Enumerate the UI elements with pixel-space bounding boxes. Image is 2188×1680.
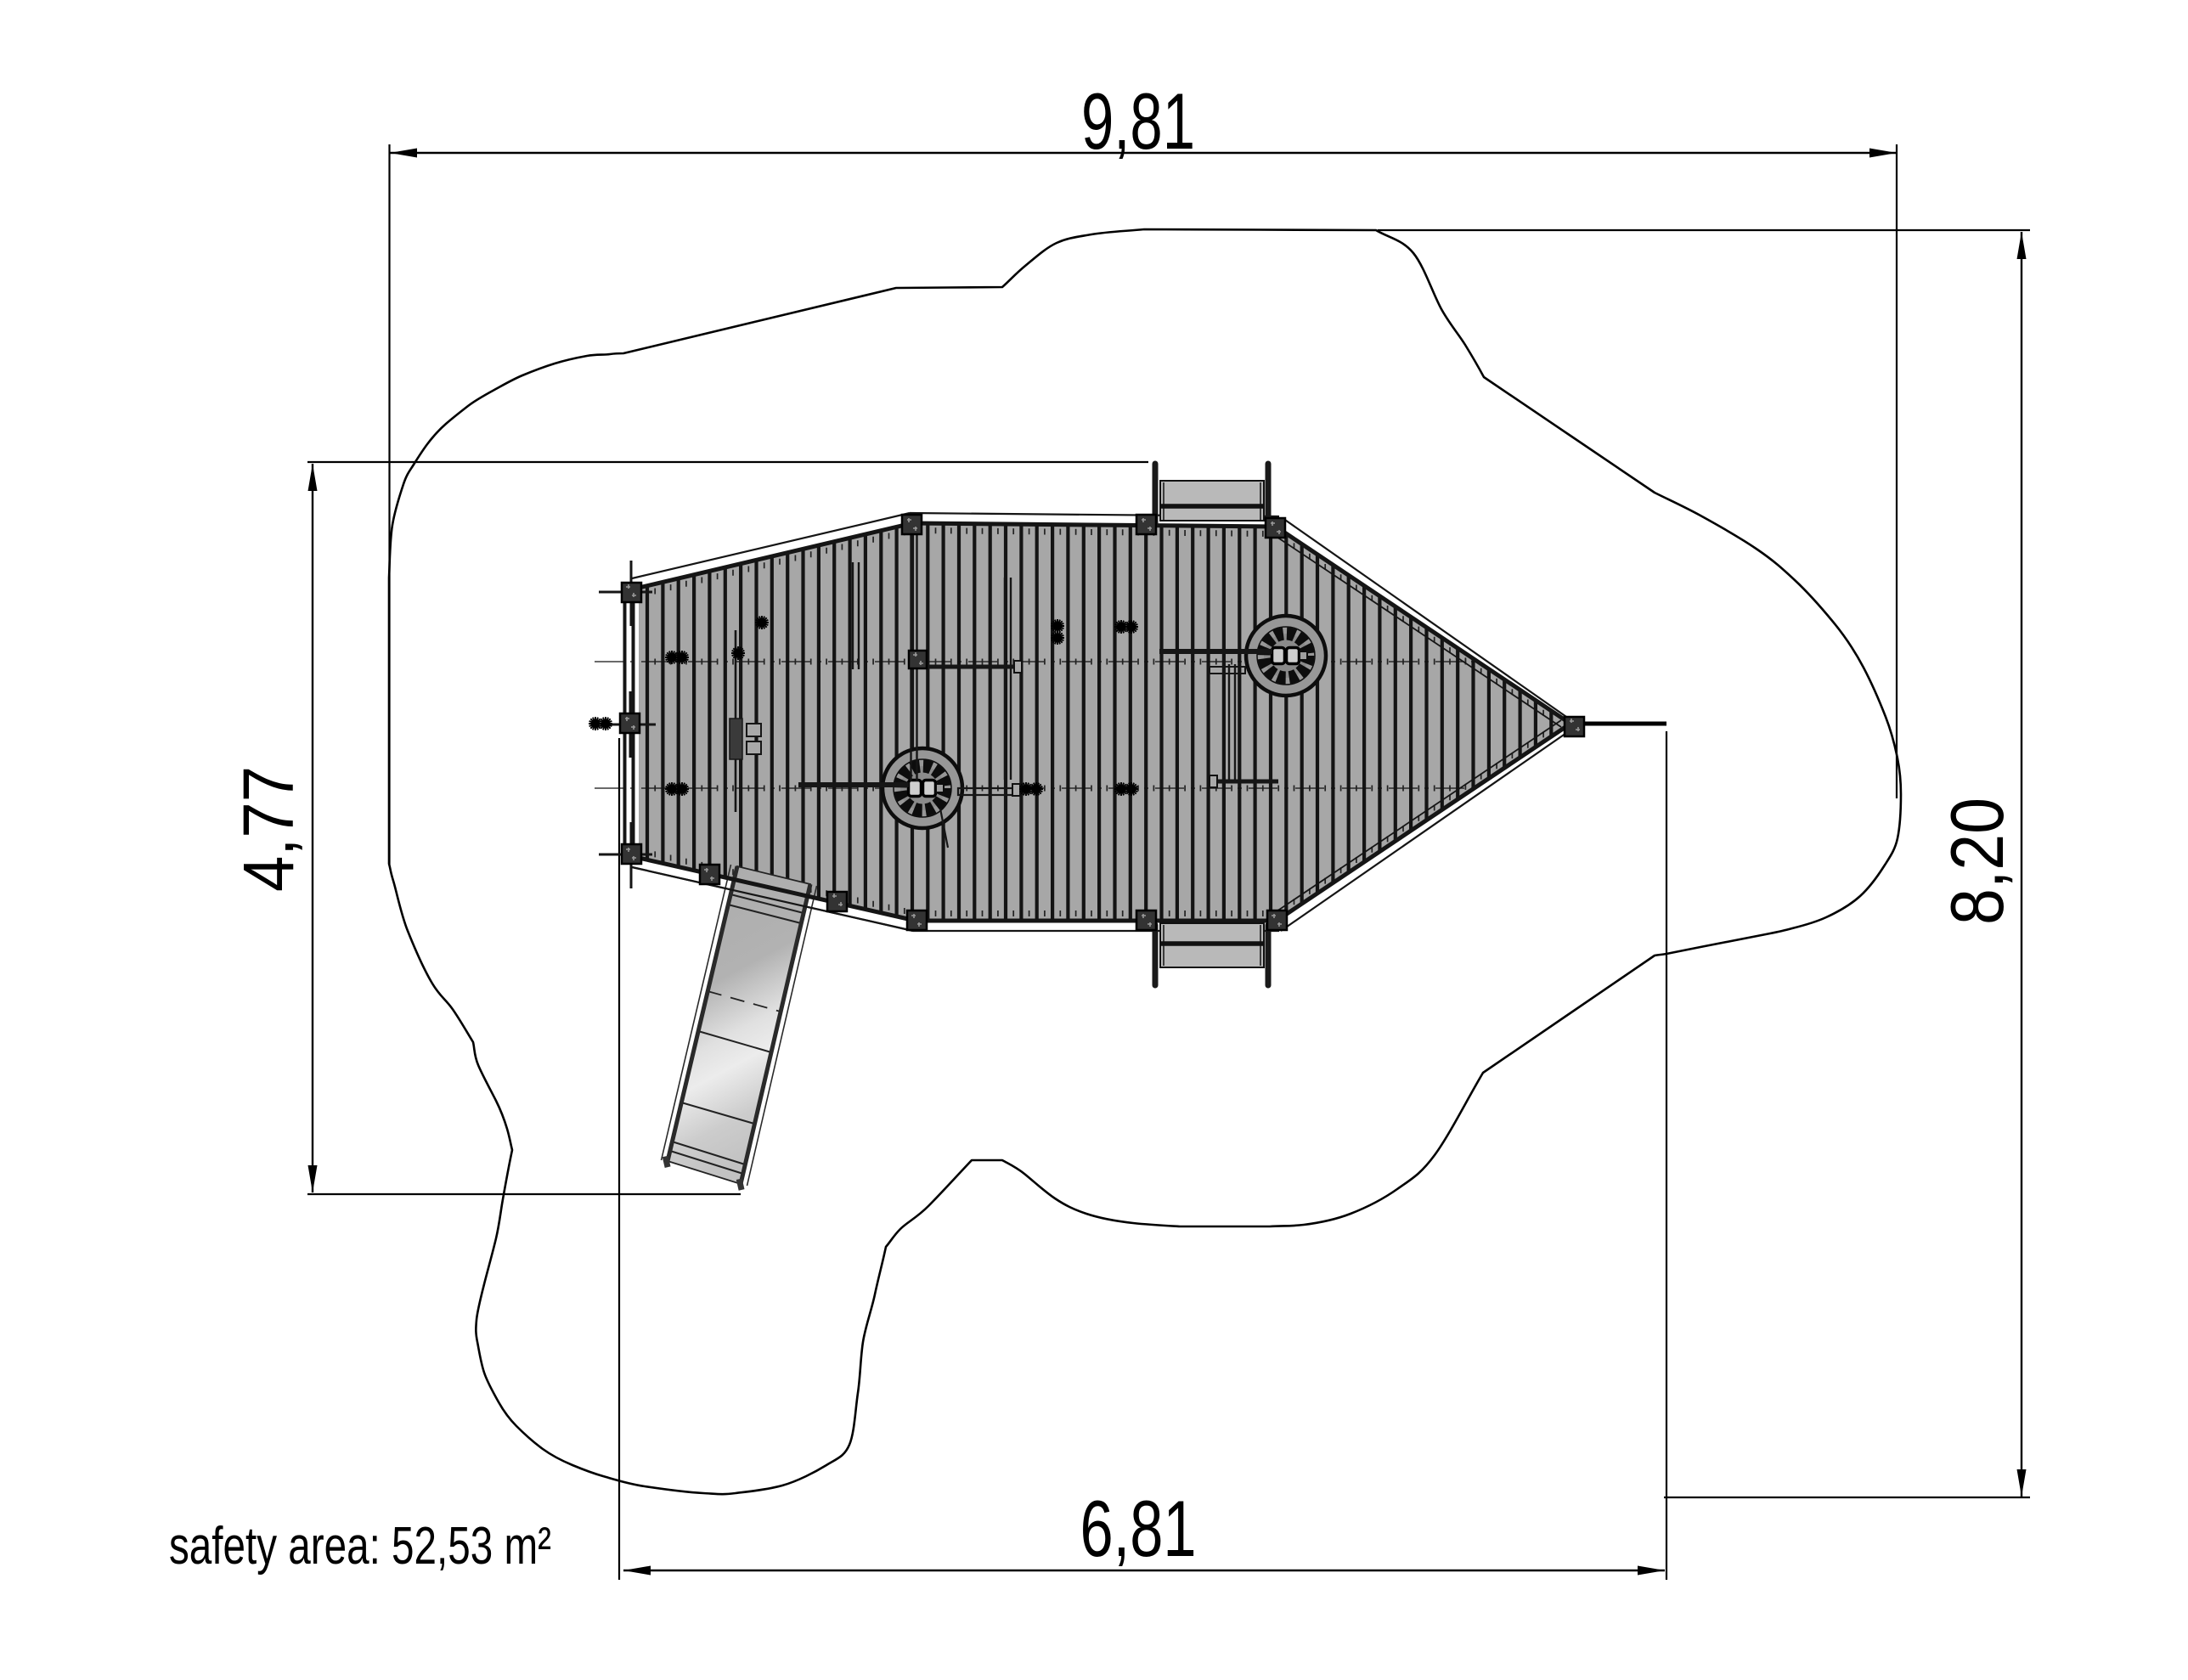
- svg-text:9,81: 9,81: [1081, 76, 1195, 166]
- svg-text:4,77: 4,77: [228, 766, 308, 892]
- svg-text:safety area: 52,53 m²: safety area: 52,53 m²: [169, 1517, 551, 1576]
- svg-text:8,20: 8,20: [1935, 798, 2019, 925]
- svg-text:6,81: 6,81: [1080, 1484, 1197, 1573]
